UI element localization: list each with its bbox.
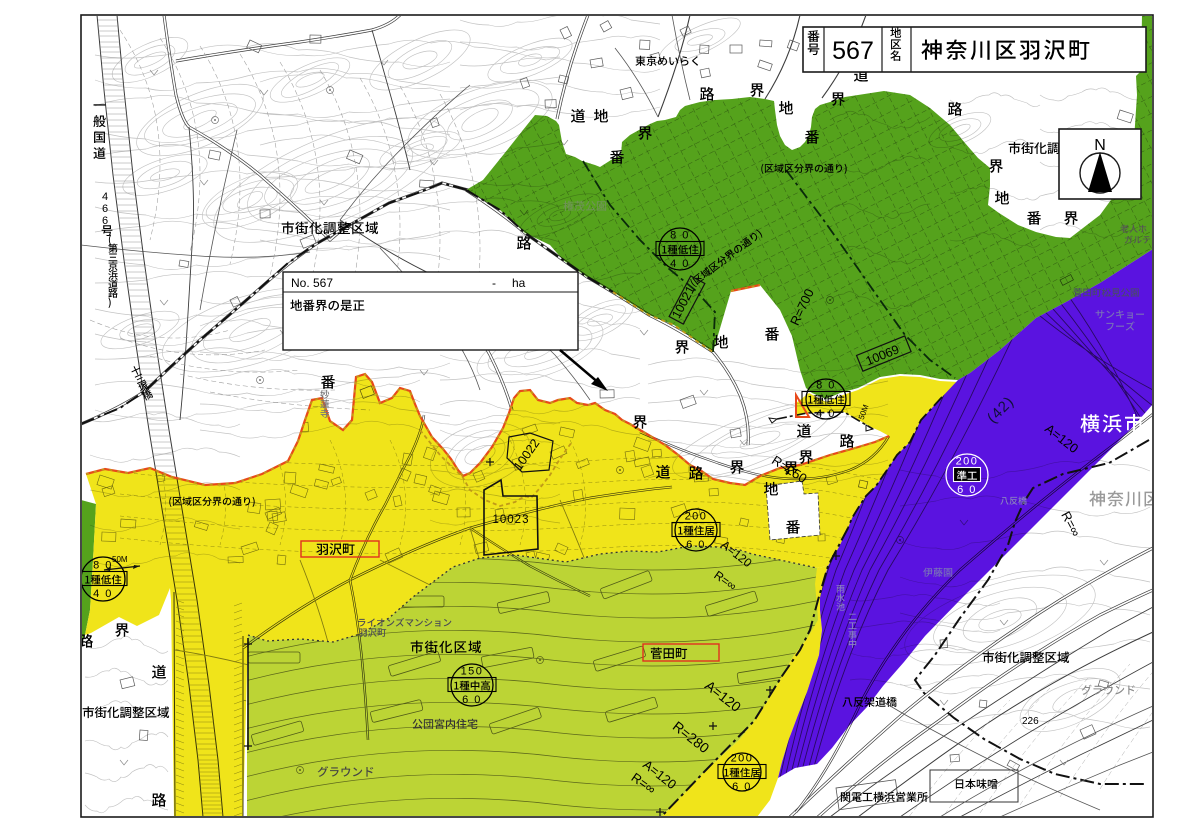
svg-text:50M: 50M: [112, 555, 128, 564]
svg-text:10023: 10023: [493, 514, 530, 526]
svg-text:-: -: [492, 276, 496, 290]
svg-text:6 0: 6 0: [686, 539, 706, 551]
svg-text:200: 200: [731, 753, 754, 765]
svg-text:6 0: 6 0: [462, 694, 482, 706]
svg-text:No. 567: No. 567: [291, 276, 333, 290]
svg-text:150: 150: [461, 666, 484, 678]
svg-text:200: 200: [956, 456, 979, 468]
svg-text:6 0: 6 0: [957, 484, 977, 496]
svg-text:8 0: 8 0: [816, 380, 836, 392]
svg-text:N: N: [1094, 137, 1106, 154]
svg-text:6 0: 6 0: [732, 781, 752, 793]
svg-text:200: 200: [685, 511, 708, 523]
svg-text:4: 4: [102, 191, 108, 203]
svg-text:4 0: 4 0: [816, 408, 836, 420]
svg-text:ha: ha: [512, 276, 526, 290]
svg-text:6: 6: [102, 203, 108, 215]
svg-text:4 0: 4 0: [93, 588, 113, 600]
svg-text:8 0: 8 0: [670, 230, 690, 242]
svg-text:567: 567: [832, 37, 874, 65]
svg-text:4 0: 4 0: [670, 258, 690, 270]
svg-text:226: 226: [1022, 716, 1039, 727]
svg-text:6: 6: [102, 215, 108, 227]
